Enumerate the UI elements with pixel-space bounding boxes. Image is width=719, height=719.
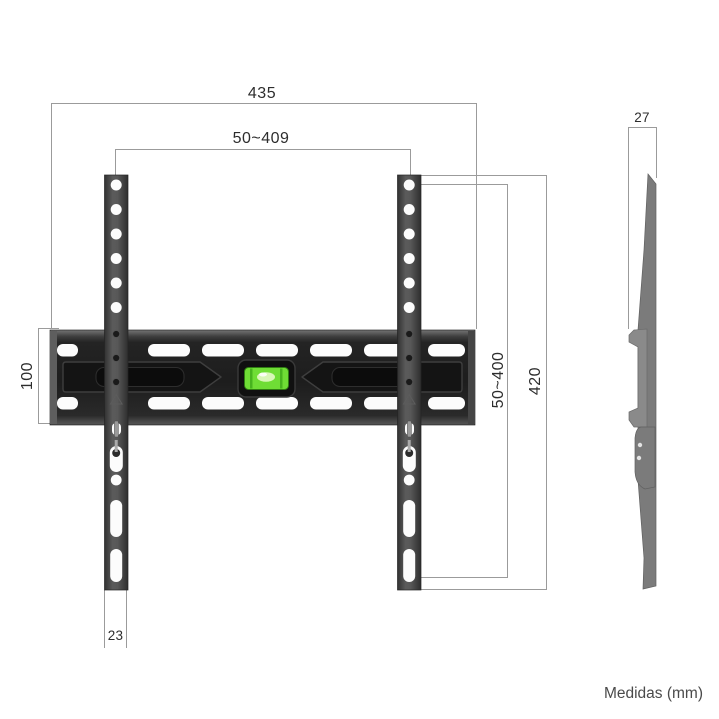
side-rail-channel (629, 329, 647, 427)
dim-total-height-label: 420 (527, 367, 544, 395)
dim-rail-height-label: 100 (19, 362, 36, 390)
units-label: Medidas (mm) (604, 685, 703, 702)
dim-total-width-label: 435 (248, 85, 276, 102)
dim-hole-width-range-label: 50~409 (233, 130, 290, 147)
dim-strap-width-label: 23 (108, 628, 124, 643)
side-view-profile (629, 174, 656, 589)
left-mounting-strap (105, 175, 129, 590)
dimension-diagram: 435 50~409 100 50~400 420 23 27 Medidas … (0, 0, 719, 719)
bubble-level (238, 360, 295, 397)
rail-right-endcap (468, 331, 475, 424)
dim-depth-label: 27 (634, 110, 650, 125)
right-mounting-strap (398, 175, 422, 590)
dim-hole-height-range-label: 50~400 (490, 352, 507, 409)
rail-left-endcap (50, 331, 57, 424)
drawing-canvas: 435 50~409 100 50~400 420 23 27 Medidas … (0, 0, 719, 719)
